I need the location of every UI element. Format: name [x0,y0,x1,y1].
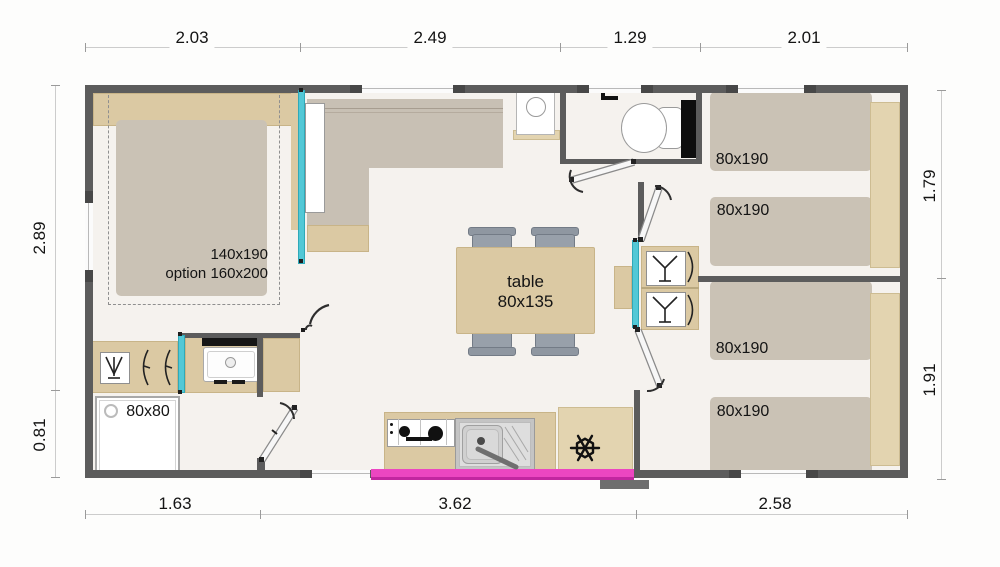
cabinet-door-arcs-hall [688,252,693,325]
plan-symbols-overlay [0,0,1000,567]
sink-drainer-lines [504,426,528,461]
snowflake-icon [571,436,599,460]
sink-handle [478,449,516,467]
faucet-icon-bedroom-vanity [106,357,122,378]
door-swing-wc [569,159,636,192]
faucet-icon-hall-basin-2 [653,297,677,322]
door-swing-bedroom-b [635,327,664,391]
door-swing-master-bedroom [306,305,329,330]
door-swing-bedroom-a [638,185,671,242]
floor-plan: 2.03 2.49 1.29 2.01 1.63 3.62 2.58 2.89 … [0,0,1000,567]
door-swing-bathroom [259,403,297,462]
faucet-icon-hall-basin-1 [653,256,677,281]
cupboard-door-arcs [144,350,173,385]
